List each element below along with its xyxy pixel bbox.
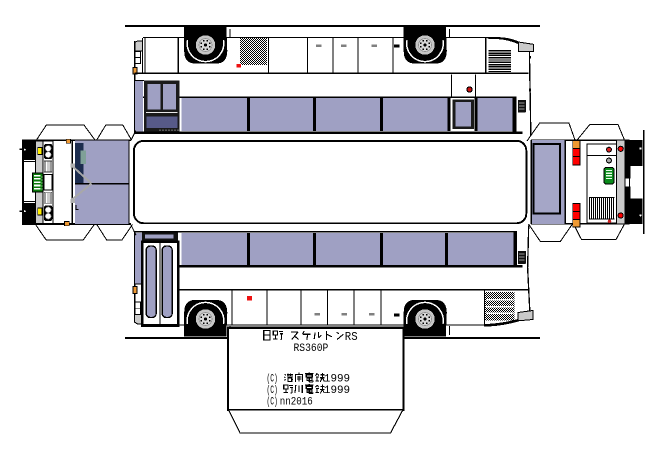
svg-text:(C): (C) xyxy=(267,385,278,397)
svg-text:RS360P: RS360P xyxy=(294,343,329,355)
svg-text:nn2016: nn2016 xyxy=(280,397,313,409)
svg-text:(C): (C) xyxy=(267,374,278,386)
svg-text:1999: 1999 xyxy=(324,385,350,397)
svg-text:RS: RS xyxy=(345,331,358,344)
svg-text:1999: 1999 xyxy=(324,374,350,386)
svg-text:(C): (C) xyxy=(267,397,278,409)
